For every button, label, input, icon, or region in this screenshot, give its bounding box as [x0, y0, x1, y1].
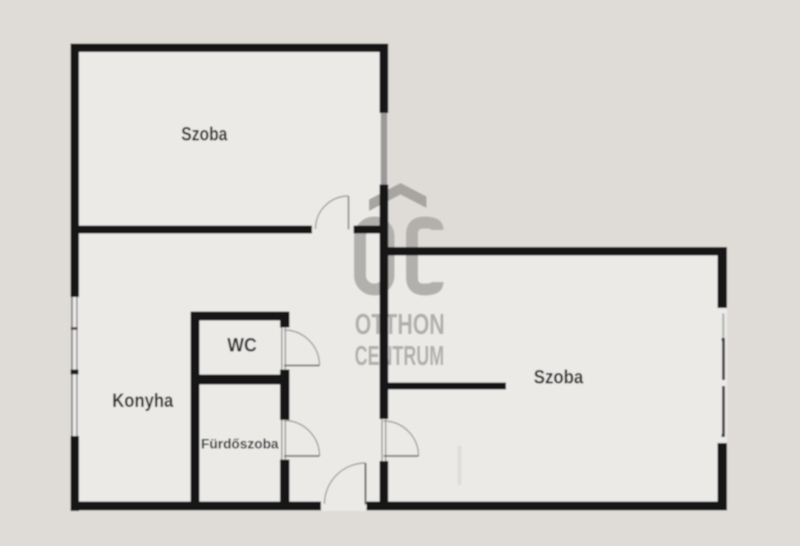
svg-text:WC: WC	[227, 334, 257, 356]
svg-text:Szoba: Szoba	[534, 368, 584, 389]
svg-text:Fürdőszoba: Fürdőszoba	[201, 436, 279, 452]
svg-text:Szoba: Szoba	[181, 125, 227, 146]
svg-text:OTTHON: OTTHON	[355, 309, 445, 341]
svg-text:CENTRUM: CENTRUM	[355, 339, 445, 371]
svg-text:Konyha: Konyha	[112, 391, 173, 412]
